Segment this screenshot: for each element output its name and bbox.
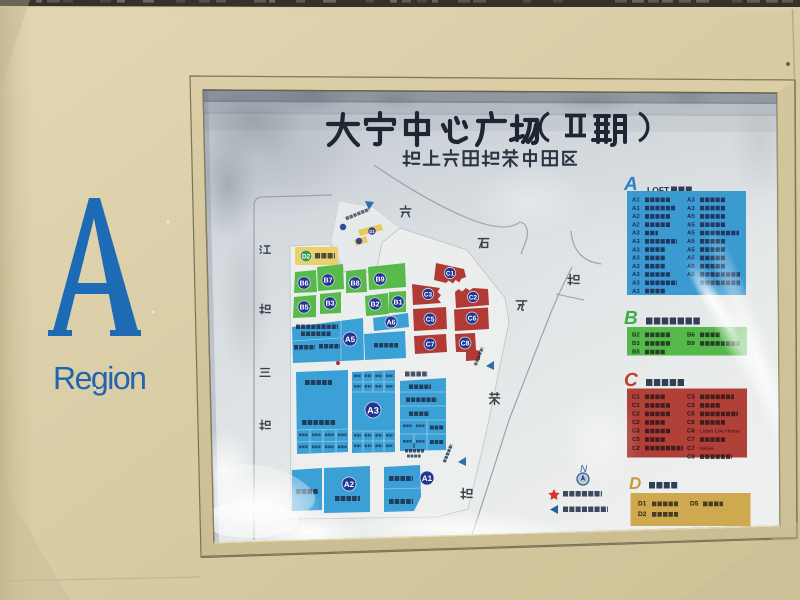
svg-text:A3: A3 [632, 246, 640, 253]
svg-text:A2: A2 [632, 221, 640, 228]
svg-text:A1: A1 [632, 205, 640, 212]
svg-text:Region: Region [53, 360, 145, 396]
svg-text:A3: A3 [367, 405, 379, 415]
svg-text:A3: A3 [632, 263, 640, 270]
svg-text:A6: A6 [387, 320, 396, 327]
svg-text:C6: C6 [687, 419, 695, 426]
svg-text:A3: A3 [632, 238, 640, 245]
svg-text:C7: C7 [687, 436, 695, 443]
svg-text:C1: C1 [632, 394, 640, 401]
svg-text:B5: B5 [299, 304, 308, 312]
svg-text:A3: A3 [687, 197, 695, 204]
svg-text:B8: B8 [350, 280, 359, 288]
svg-text:D: D [629, 474, 641, 493]
svg-text:C3: C3 [687, 402, 695, 409]
svg-text:A2: A2 [632, 213, 640, 220]
svg-text:C2: C2 [469, 294, 478, 301]
svg-text:A5: A5 [687, 213, 695, 220]
svg-text:C6: C6 [468, 316, 477, 323]
svg-text:A3: A3 [632, 230, 640, 237]
svg-text:D1: D1 [369, 229, 375, 234]
svg-text:A1: A1 [632, 197, 640, 204]
svg-text:A3: A3 [632, 271, 640, 278]
svg-text:D2: D2 [638, 511, 647, 518]
svg-text:Listen Live House: Listen Live House [700, 429, 740, 435]
svg-text:C1: C1 [632, 402, 640, 409]
svg-text:C7: C7 [426, 342, 435, 349]
svg-text:A1: A1 [422, 474, 433, 483]
svg-text:A5: A5 [687, 230, 695, 237]
svg-text:D5: D5 [690, 501, 699, 508]
svg-text:B2: B2 [632, 332, 640, 339]
svg-text:C1: C1 [446, 270, 455, 277]
svg-text:C5: C5 [687, 411, 695, 418]
svg-text:C8: C8 [461, 341, 470, 348]
svg-text:B: B [624, 308, 638, 329]
svg-text:A5: A5 [345, 335, 356, 344]
svg-text:C: C [624, 370, 638, 391]
svg-text:B3: B3 [325, 300, 334, 308]
svg-text:B9: B9 [375, 276, 384, 284]
svg-text:B5: B5 [632, 349, 640, 356]
svg-text:D2: D2 [302, 253, 311, 260]
svg-text:B9: B9 [687, 340, 695, 347]
svg-text:B6: B6 [687, 332, 695, 339]
svg-text:A3: A3 [632, 288, 640, 295]
svg-text:C6: C6 [687, 428, 695, 435]
svg-text:B1: B1 [393, 299, 402, 307]
svg-text:B3: B3 [632, 340, 640, 347]
svg-text:A3: A3 [632, 280, 640, 287]
svg-text:A5: A5 [687, 221, 695, 228]
svg-text:C3: C3 [424, 291, 433, 298]
svg-text:NASA: NASA [700, 446, 714, 452]
svg-text:C3: C3 [687, 394, 695, 401]
svg-text:C5: C5 [426, 317, 435, 324]
svg-text:C8: C8 [687, 453, 695, 460]
svg-text:B6: B6 [299, 280, 308, 288]
svg-text:A5: A5 [687, 238, 695, 245]
svg-text:A2: A2 [344, 480, 355, 489]
svg-text:A3: A3 [632, 255, 640, 262]
svg-text:C7: C7 [687, 445, 695, 452]
svg-text:D1: D1 [638, 501, 647, 508]
svg-text:B7: B7 [323, 277, 332, 285]
svg-text:B2: B2 [370, 301, 379, 309]
svg-text:A3: A3 [687, 205, 695, 212]
